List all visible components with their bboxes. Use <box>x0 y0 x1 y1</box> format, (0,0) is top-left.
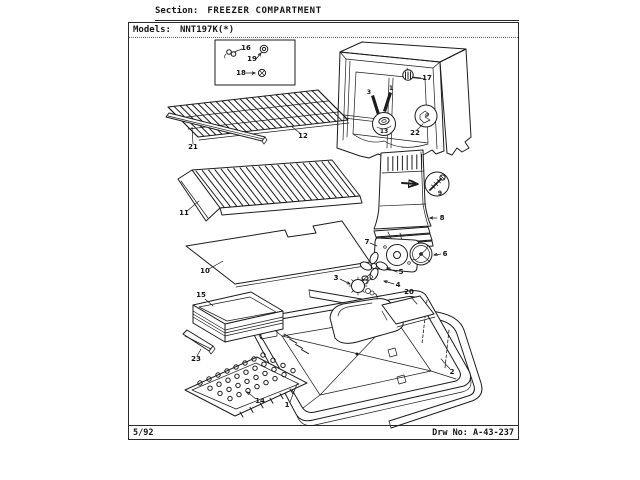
fan-grille <box>410 243 432 265</box>
callout-5: 5 <box>399 268 404 276</box>
callout-6: 6 <box>443 250 448 258</box>
callout-22: 22 <box>410 129 420 137</box>
callout-7: 7 <box>365 238 370 246</box>
callout-9: 9 <box>438 190 442 197</box>
callout-3a: 3 <box>367 89 371 96</box>
callout-23: 23 <box>191 355 201 363</box>
freezer-light <box>403 68 413 80</box>
freezer-cabinet <box>337 42 471 158</box>
detail-circle-clip <box>415 105 437 127</box>
callout-3b: 3 <box>334 274 339 282</box>
callout-15: 15 <box>196 291 206 299</box>
callout-12: 12 <box>298 132 308 140</box>
callout-16: 16 <box>241 44 251 52</box>
callout-8: 8 <box>440 214 445 222</box>
callout-13: 13 <box>380 128 388 135</box>
callout-1a: 1 <box>389 85 393 92</box>
callout-10: 10 <box>200 267 210 275</box>
callout-20: 20 <box>404 288 414 296</box>
wire-shelf <box>168 90 349 140</box>
callout-11: 11 <box>179 209 189 217</box>
callout-14: 14 <box>255 397 265 405</box>
callout-1b: 1 <box>285 401 290 409</box>
callout-18: 18 <box>236 69 246 77</box>
flat-panel <box>186 221 371 287</box>
ribbed-shelf <box>178 160 362 221</box>
callout-19: 19 <box>247 55 257 63</box>
callout-2: 2 <box>450 368 455 376</box>
evaporator-duct <box>374 150 433 250</box>
callout-4: 4 <box>396 281 401 289</box>
exploded-parts-diagram: 16 19 18 17 3 1 13 22 9 8 12 21 11 10 15… <box>0 0 640 480</box>
callout-17: 17 <box>422 74 432 82</box>
manual-page: Section:FREEZER COMPARTMENT Models:NNT19… <box>0 0 640 480</box>
callout-21: 21 <box>188 143 198 151</box>
